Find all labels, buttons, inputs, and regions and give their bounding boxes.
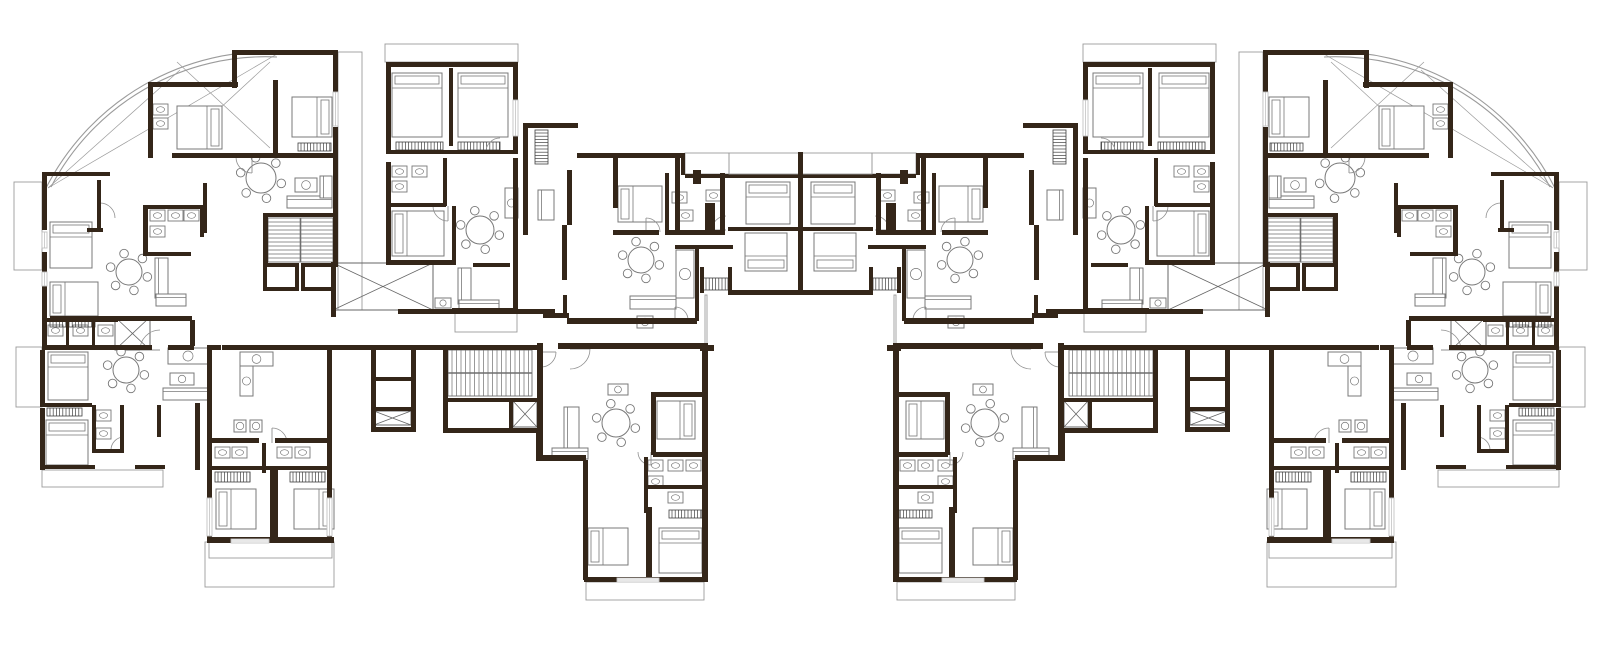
plan-half-right <box>797 44 1587 600</box>
window-icons <box>942 92 1559 582</box>
dining-table-icons <box>937 153 1497 446</box>
floor-plan-svg <box>0 0 1600 645</box>
plan-half-left <box>14 44 804 600</box>
stair-landings <box>1268 265 1336 289</box>
dining-table-icons <box>103 153 663 446</box>
window-icons <box>42 92 659 582</box>
floor-plan-canvas <box>0 0 1600 645</box>
stair-landings <box>265 265 333 289</box>
